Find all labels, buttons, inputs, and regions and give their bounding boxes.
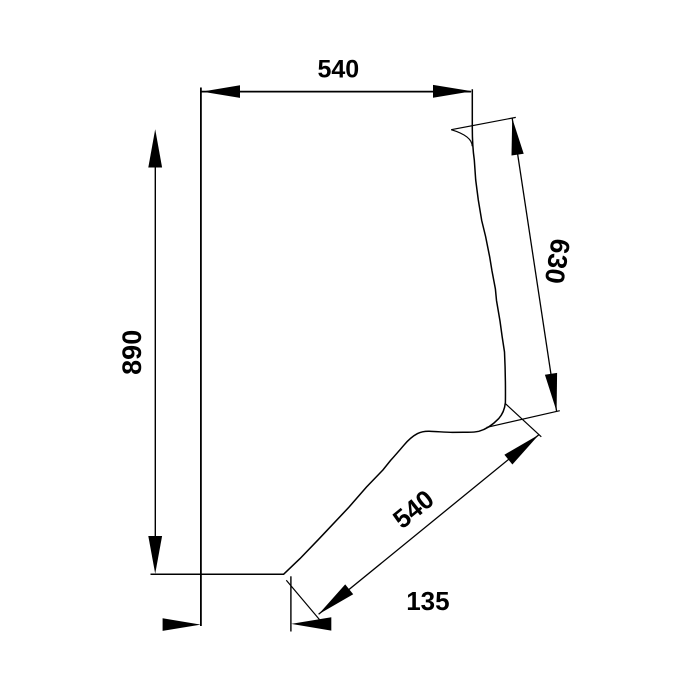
svg-text:540: 540 [317, 56, 359, 84]
svg-text:135: 135 [406, 586, 449, 616]
svg-text:890: 890 [117, 330, 147, 375]
